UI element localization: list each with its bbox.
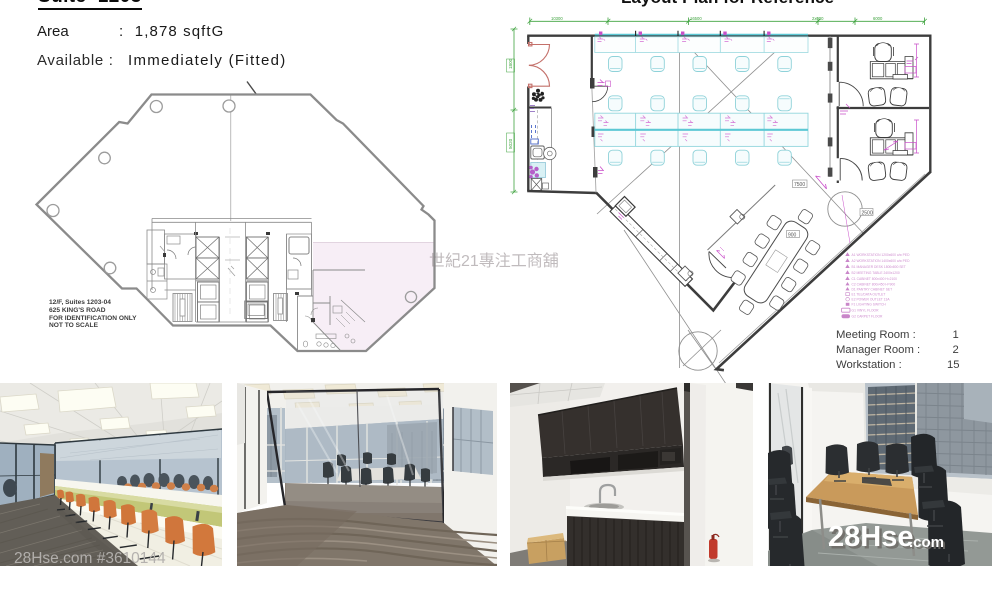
svg-text:2500: 2500 [862,210,873,216]
svg-text:A2 WORKSTATION 1400x600 c/w PE: A2 WORKSTATION 1400x600 c/w PED [852,259,911,263]
svg-text:5020: 5020 [508,138,513,149]
svg-text:.com: .com [909,534,944,551]
svg-text:C1 CABINET 800x400 H=2100: C1 CABINET 800x400 H=2100 [852,277,898,281]
svg-text:D1 PANTRY CABINET SET: D1 PANTRY CABINET SET [852,288,893,292]
svg-text:900: 900 [788,232,797,238]
svg-text:16500: 16500 [690,16,702,21]
svg-text:E2 POWER OUTLET 13A: E2 POWER OUTLET 13A [852,298,891,302]
svg-text:6000: 6000 [873,16,883,21]
svg-text:10300: 10300 [551,16,563,21]
svg-text:2x600: 2x600 [812,16,824,21]
svg-text:B1 MANAGER DESK 1800x800 SET: B1 MANAGER DESK 1800x800 SET [852,265,906,269]
svg-text:G2 CARPET FLOOR: G2 CARPET FLOOR [852,315,884,319]
svg-text:G1 VINYL FLOOR: G1 VINYL FLOOR [852,309,880,313]
svg-text:A1 WORKSTATION 1200x600 c/w PE: A1 WORKSTATION 1200x600 c/w PED [852,253,911,257]
svg-text:C2 CABINET 800x450 H=900: C2 CABINET 800x450 H=900 [852,283,896,287]
svg-text:E1 TEL/DATA OUTLET: E1 TEL/DATA OUTLET [852,293,886,297]
svg-text:F1 LIGHTING SWITCH: F1 LIGHTING SWITCH [852,303,887,307]
svg-text:7500: 7500 [794,182,805,188]
svg-text:1800: 1800 [508,58,513,69]
svg-text:B2 MEETING TABLE 2400x1200: B2 MEETING TABLE 2400x1200 [852,271,900,275]
svg-text:28Hse: 28Hse [828,521,913,553]
